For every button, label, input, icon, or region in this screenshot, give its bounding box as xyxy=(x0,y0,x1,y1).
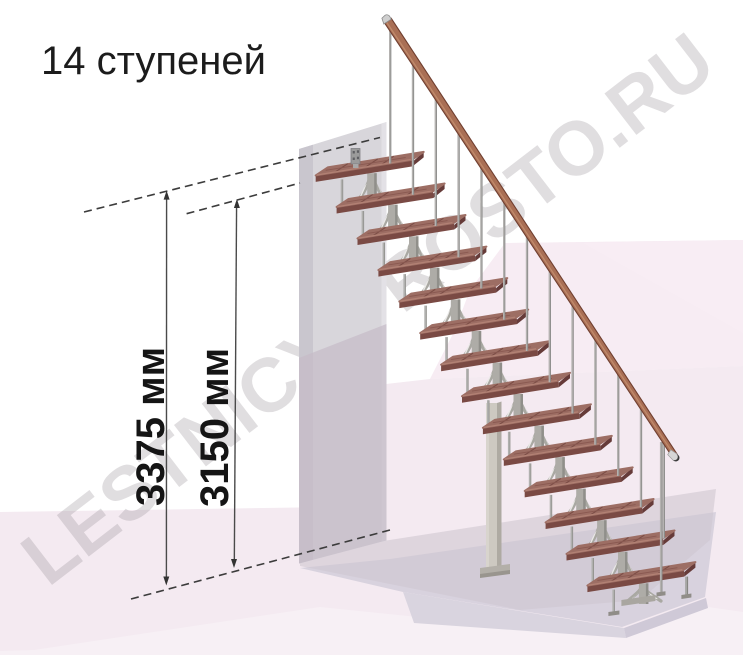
svg-text:3375 мм: 3375 мм xyxy=(129,347,173,506)
svg-text:14 ступеней: 14 ступеней xyxy=(41,39,266,83)
svg-text:3150 мм: 3150 мм xyxy=(193,348,237,507)
